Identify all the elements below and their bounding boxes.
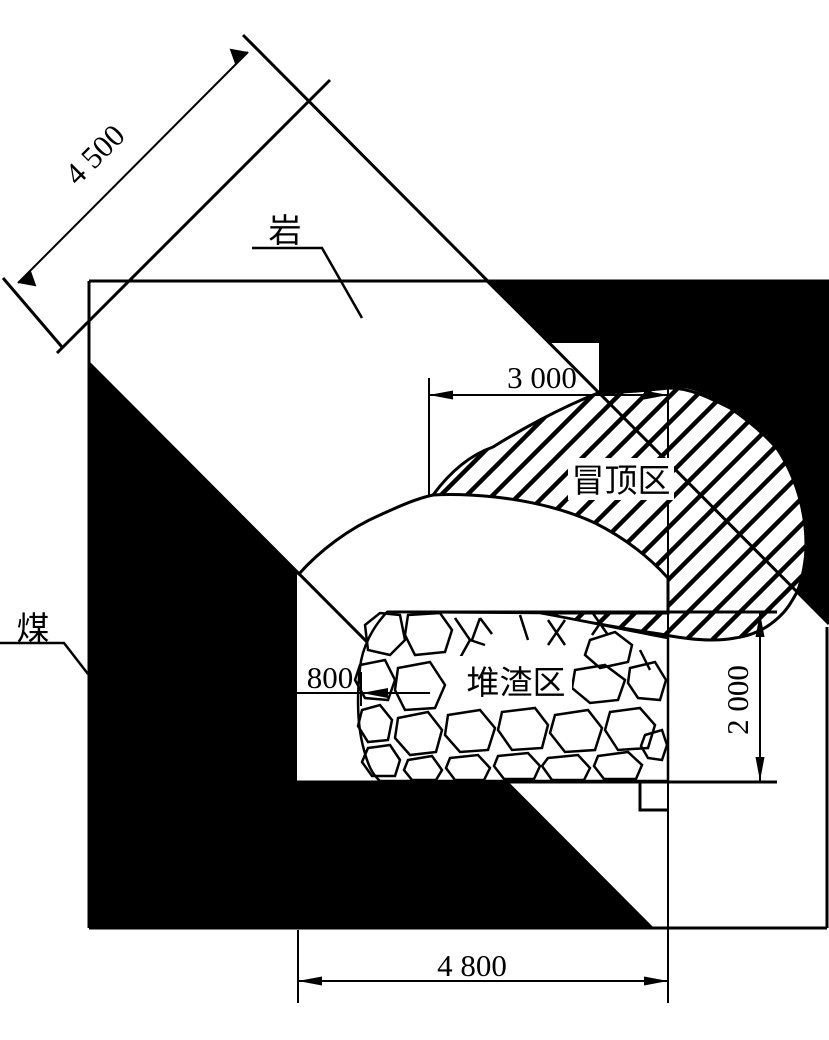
- roof-fall-zone-area: [433, 388, 806, 640]
- debris-zone-label: 堆渣区: [467, 665, 566, 702]
- mining-cross-section-diagram: 4 500 岩 煤 3 000 冒顶区 堆渣区 800 2 000 4 800: [0, 0, 829, 1040]
- arrow-4800-right: [644, 977, 668, 986]
- rock-label-leader: [252, 248, 362, 318]
- dim-4800-label: 4 800: [437, 948, 507, 983]
- cavity-dome-curve: [298, 495, 433, 575]
- diagram-canvas: 4 500 岩 煤 3 000 冒顶区 堆渣区 800 2 000 4 800: [0, 0, 829, 1040]
- dim-4500-line: [18, 52, 248, 283]
- dim-2000-label: 2 000: [720, 665, 755, 735]
- roof-fall-zone-label: 冒顶区: [572, 464, 671, 500]
- arrow-2000-bottom: [756, 757, 765, 781]
- dim-800-label: 800: [307, 660, 354, 695]
- rock-label: 岩: [269, 213, 302, 250]
- arrow-3000-left: [429, 391, 453, 400]
- dim-3000-label: 3 000: [507, 360, 577, 395]
- coal-label: 煤: [17, 612, 50, 648]
- floor-step-notch: [640, 783, 668, 810]
- dim-4500-tick: [3, 278, 62, 347]
- arrow-4800-left: [298, 977, 322, 986]
